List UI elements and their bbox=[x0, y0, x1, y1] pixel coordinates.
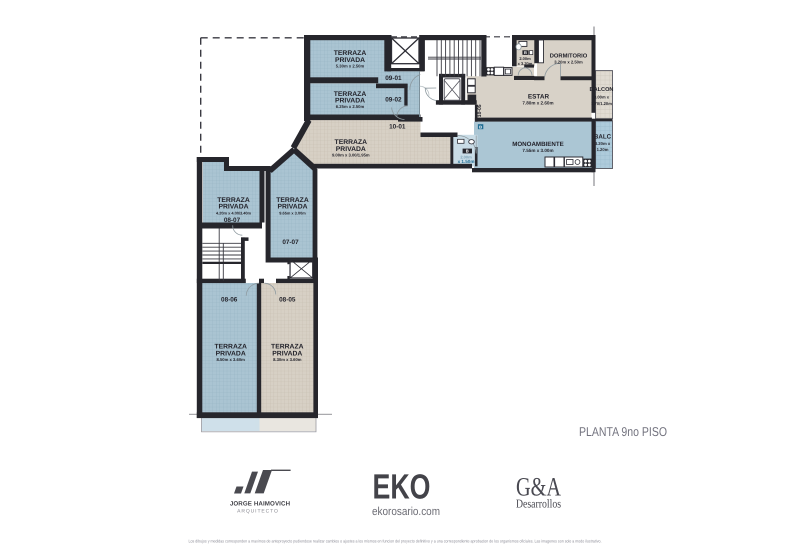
svg-text:JORGE HAIMOVICH: JORGE HAIMOVICH bbox=[230, 501, 291, 508]
svg-text:BALCON: BALCON bbox=[590, 87, 614, 93]
svg-text:B: B bbox=[524, 50, 527, 55]
svg-text:ARQUITECTO: ARQUITECTO bbox=[237, 508, 279, 514]
svg-text:EKO: EKO bbox=[373, 467, 431, 506]
svg-text:7.55m x 3.00m: 7.55m x 3.00m bbox=[522, 148, 553, 153]
svg-text:PLANTA 9no PISO: PLANTA 9no PISO bbox=[579, 424, 667, 439]
svg-text:Desarrollos: Desarrollos bbox=[516, 497, 561, 511]
svg-text:09-02: 09-02 bbox=[385, 96, 402, 103]
svg-text:1.70/1.20m: 1.70/1.20m bbox=[591, 101, 612, 106]
svg-text:09-01: 09-01 bbox=[385, 75, 402, 82]
svg-text:x 3.20m: x 3.20m bbox=[518, 61, 533, 66]
svg-text:08-07: 08-07 bbox=[224, 217, 241, 224]
svg-text:9.65m x 3.00m: 9.65m x 3.00m bbox=[279, 210, 306, 215]
svg-text:08-05: 08-05 bbox=[279, 297, 296, 304]
svg-text:10-01: 10-01 bbox=[389, 124, 406, 131]
svg-text:DORMITORIO: DORMITORIO bbox=[550, 52, 588, 59]
svg-text:3.20m x 2.50m: 3.20m x 2.50m bbox=[554, 60, 583, 65]
svg-text:6.25m x 2.50m: 6.25m x 2.50m bbox=[336, 104, 365, 109]
svg-text:7.80m x 2.60m: 7.80m x 2.60m bbox=[522, 100, 553, 105]
svg-text:5.30m x 2.50m: 5.30m x 2.50m bbox=[336, 63, 365, 68]
svg-text:3.20m x: 3.20m x bbox=[595, 141, 611, 146]
svg-text:07-07: 07-07 bbox=[282, 239, 299, 246]
svg-text:8.30m x 3.60m: 8.30m x 3.60m bbox=[273, 357, 302, 362]
svg-text:B: B bbox=[466, 149, 469, 154]
svg-text:10-05: 10-05 bbox=[477, 104, 483, 117]
svg-text:x 1.50m: x 1.50m bbox=[458, 159, 475, 164]
svg-text:BALC: BALC bbox=[594, 133, 612, 140]
svg-text:1.20m: 1.20m bbox=[597, 147, 609, 152]
svg-text:3.00m x: 3.00m x bbox=[594, 95, 610, 100]
svg-text:9.00m x 3.00/1.95m: 9.00m x 3.00/1.95m bbox=[332, 153, 370, 158]
svg-text:ekorosario.com: ekorosario.com bbox=[372, 506, 440, 518]
svg-text:8.50m x 3.60m: 8.50m x 3.60m bbox=[216, 357, 245, 362]
svg-text:4.20m x 4.00/3.40m: 4.20m x 4.00/3.40m bbox=[216, 210, 252, 215]
svg-text:B: B bbox=[479, 124, 482, 129]
svg-text:08-06: 08-06 bbox=[221, 297, 238, 304]
svg-text:ESTAR: ESTAR bbox=[528, 93, 550, 100]
svg-text:Los dibujos y medidas correspo: Los dibujos y medidas corresponden a max… bbox=[189, 539, 602, 544]
svg-text:MONOAMBIENTE: MONOAMBIENTE bbox=[512, 141, 564, 148]
